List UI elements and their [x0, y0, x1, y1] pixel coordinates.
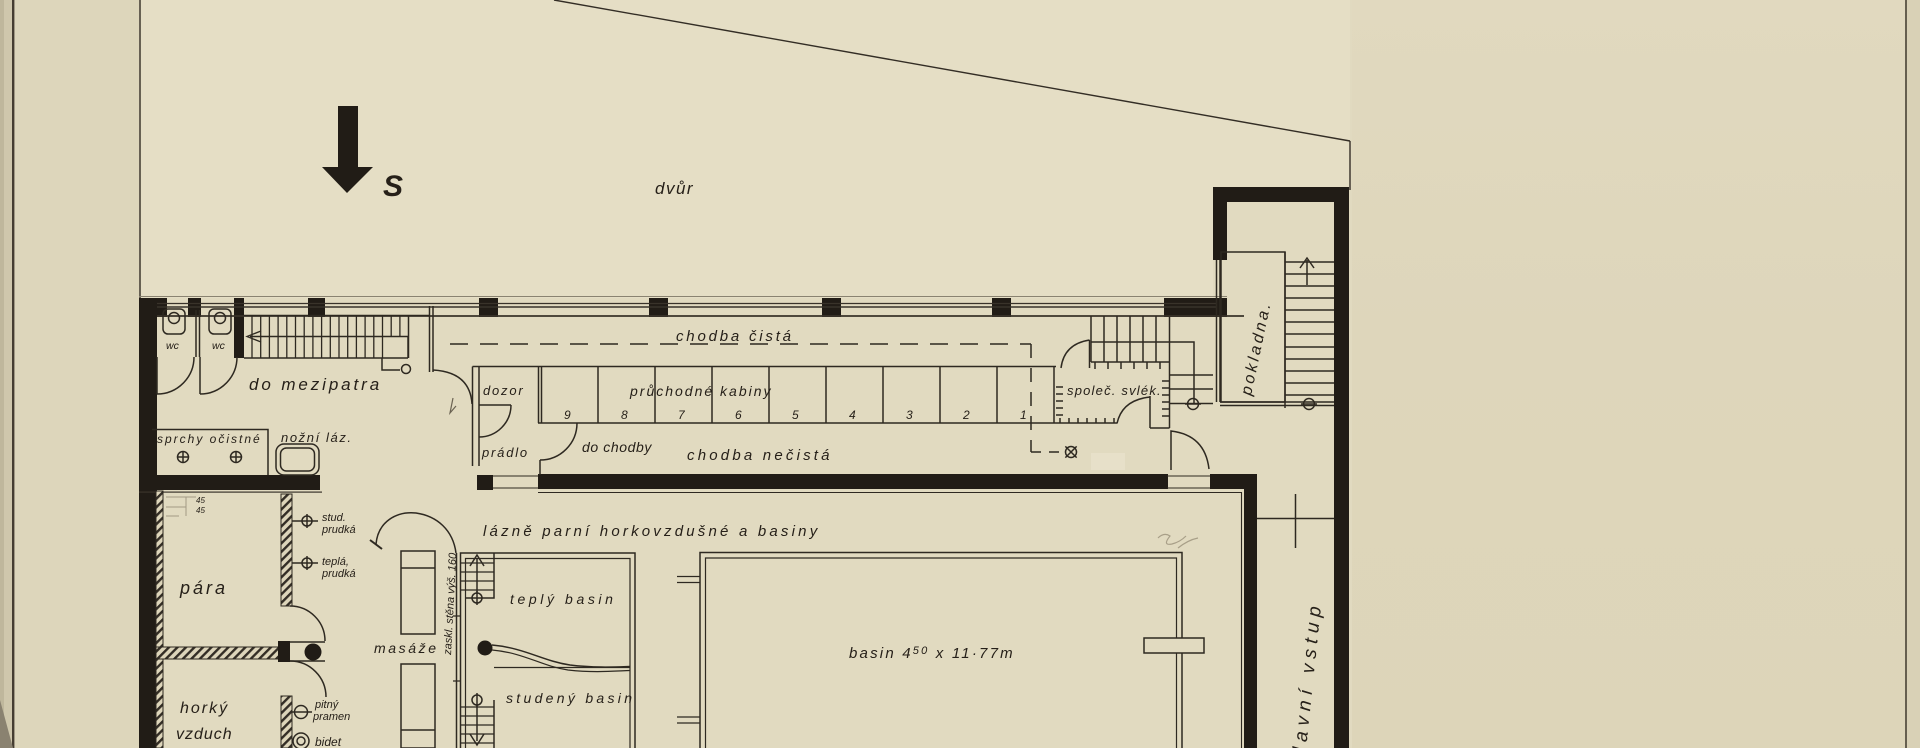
svg-text:2: 2	[962, 408, 970, 422]
svg-text:5: 5	[792, 408, 799, 422]
svg-text:bidet: bidet	[315, 735, 342, 748]
svg-text:vzduch: vzduch	[176, 726, 233, 743]
svg-text:1: 1	[1020, 408, 1027, 422]
svg-text:dvůr: dvůr	[655, 179, 694, 198]
svg-text:prudká: prudká	[321, 568, 356, 580]
svg-text:45: 45	[196, 506, 205, 515]
svg-text:prádlo: prádlo	[481, 445, 529, 460]
svg-text:pitný: pitný	[314, 699, 340, 711]
svg-text:45: 45	[196, 496, 205, 505]
svg-text:3: 3	[906, 408, 913, 422]
svg-text:do chodby: do chodby	[582, 439, 652, 455]
svg-text:wc: wc	[212, 340, 226, 352]
svg-text:nožní láz.: nožní láz.	[281, 430, 353, 445]
svg-text:společ. svlék.: společ. svlék.	[1067, 383, 1162, 398]
svg-text:pára: pára	[179, 578, 228, 598]
svg-text:lázně parní horkovzdušné a bas: lázně parní horkovzdušné a basiny	[483, 523, 820, 540]
svg-text:S: S	[383, 170, 403, 203]
svg-text:basin 450 x 11·77m: basin 450 x 11·77m	[849, 645, 1015, 662]
svg-text:dozor: dozor	[483, 383, 525, 398]
svg-text:studený basin: studený basin	[506, 690, 635, 706]
svg-text:chodba čistá: chodba čistá	[676, 328, 794, 345]
svg-text:teplá,: teplá,	[322, 556, 349, 568]
svg-text:horký: horký	[180, 700, 229, 717]
svg-text:stud.: stud.	[322, 512, 346, 524]
svg-text:9: 9	[564, 408, 571, 422]
svg-text:sprchy očistné: sprchy očistné	[157, 432, 262, 446]
svg-text:do mezipatra: do mezipatra	[249, 375, 382, 394]
svg-text:teplý basin: teplý basin	[510, 591, 617, 607]
svg-text:průchodné kabiny: průchodné kabiny	[629, 383, 773, 399]
svg-text:8: 8	[621, 408, 628, 422]
svg-text:pramen: pramen	[312, 711, 350, 723]
svg-text:6: 6	[735, 408, 742, 422]
svg-text:prudká: prudká	[321, 524, 356, 536]
svg-text:wc: wc	[166, 340, 180, 352]
svg-text:chodba nečistá: chodba nečistá	[687, 447, 833, 464]
svg-text:4: 4	[849, 408, 856, 422]
svg-text:masáže: masáže	[374, 640, 439, 656]
